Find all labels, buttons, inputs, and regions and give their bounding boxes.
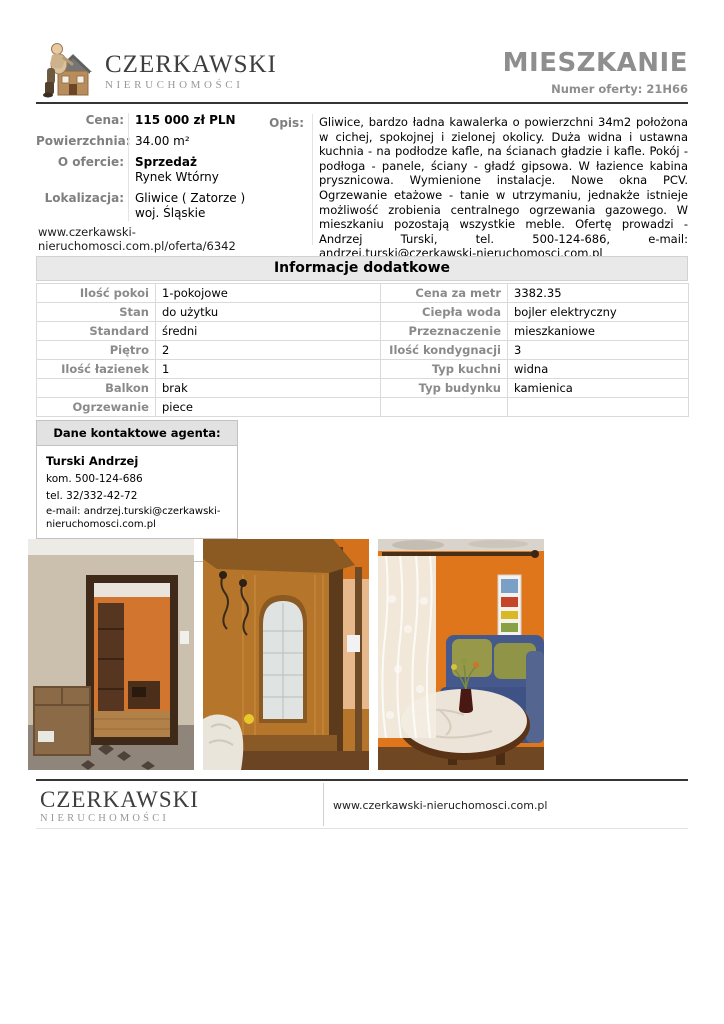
divider-rule-bottom bbox=[36, 779, 688, 781]
info-value: 1 bbox=[156, 360, 381, 379]
info-value: 3382.35 bbox=[508, 284, 689, 303]
info-value: 3 bbox=[508, 341, 689, 360]
summary-divider-line bbox=[128, 113, 129, 221]
brand-text: CZERKAWSKI NIERUCHOMOŚCI bbox=[105, 38, 277, 91]
info-value: widna bbox=[508, 360, 689, 379]
offer-type-value: Sprzedaż bbox=[135, 155, 272, 170]
info-label: Stan bbox=[37, 303, 156, 322]
info-value: 1-pokojowe bbox=[156, 284, 381, 303]
info-label: Ilość pokoi bbox=[37, 284, 156, 303]
table-row: Ogrzewanie piece bbox=[37, 398, 689, 417]
listing-url-line1[interactable]: www.czerkawski- bbox=[38, 225, 236, 239]
location-region: woj. Śląskie bbox=[135, 206, 272, 221]
listing-url-line2[interactable]: nieruchomosci.com.pl/oferta/6342 bbox=[38, 239, 236, 253]
info-label: Ilość kondygnacji bbox=[381, 341, 508, 360]
photo-living-room-image bbox=[378, 539, 544, 770]
price-label: Cena: bbox=[36, 113, 124, 128]
agent-name: Turski Andrzej bbox=[46, 454, 228, 468]
info-value: bojler elektryczny bbox=[508, 303, 689, 322]
additional-info-table: Ilość pokoi 1-pokojowe Cena za metr 3382… bbox=[36, 283, 689, 417]
info-label: Cena za metr bbox=[381, 284, 508, 303]
photo-room-doorway bbox=[28, 539, 194, 770]
info-label: Przeznaczenie bbox=[381, 322, 508, 341]
table-row: Standard średni Przeznaczenie mieszkanio… bbox=[37, 322, 689, 341]
footer-bottom-line bbox=[36, 828, 688, 829]
offer-type-label: O ofercie: bbox=[36, 155, 124, 185]
photo-room-doorway-image bbox=[28, 539, 194, 770]
info-label: Ciepła woda bbox=[381, 303, 508, 322]
photo-hallway-wardrobe bbox=[203, 539, 369, 770]
info-value: mieszkaniowe bbox=[508, 322, 689, 341]
summary-row-location: Lokalizacja: Gliwice ( Zatorze ) woj. Śl… bbox=[36, 191, 272, 221]
photo-hallway-wardrobe-image bbox=[203, 539, 369, 770]
table-row: Ilość łazienek 1 Typ kuchni widna bbox=[37, 360, 689, 379]
table-row: Piętro 2 Ilość kondygnacji 3 bbox=[37, 341, 689, 360]
location-values: Gliwice ( Zatorze ) woj. Śląskie bbox=[135, 191, 272, 221]
info-label: Typ kuchni bbox=[381, 360, 508, 379]
info-label: Standard bbox=[37, 322, 156, 341]
info-label: Typ budynku bbox=[381, 379, 508, 398]
offer-number: Numer oferty: 21H66 bbox=[503, 82, 688, 96]
location-label: Lokalizacja: bbox=[36, 191, 124, 221]
info-label: Ilość łazienek bbox=[37, 360, 156, 379]
footer-website-link[interactable]: www.czerkawski-nieruchomosci.com.pl bbox=[333, 799, 547, 812]
info-value: brak bbox=[156, 379, 381, 398]
brand-name: CZERKAWSKI bbox=[105, 52, 277, 77]
listing-url-link[interactable]: www.czerkawski- nieruchomosci.com.pl/ofe… bbox=[38, 225, 236, 253]
agent-email-link[interactable]: e-mail: andrzej.turski@czerkawski-nieruc… bbox=[46, 506, 228, 531]
description-label: Opis: bbox=[222, 116, 304, 130]
footer-brand-name: CZERKAWSKI bbox=[40, 788, 199, 811]
info-label: Piętro bbox=[37, 341, 156, 360]
info-value: 2 bbox=[156, 341, 381, 360]
info-value: piece bbox=[156, 398, 381, 417]
summary-row-offer: O ofercie: Sprzedaż Rynek Wtórny bbox=[36, 155, 272, 185]
brand-subtitle: NIERUCHOMOŚCI bbox=[105, 80, 277, 91]
footer-divider-line bbox=[323, 783, 324, 826]
divider-rule-top bbox=[36, 102, 688, 104]
description-text: Gliwice, bardzo ładna kawalerka o powier… bbox=[319, 115, 688, 261]
table-row: Stan do użytku Ciepła woda bojler elektr… bbox=[37, 303, 689, 322]
table-row: Balkon brak Typ budynku kamienica bbox=[37, 379, 689, 398]
info-value bbox=[508, 398, 689, 417]
info-label: Ogrzewanie bbox=[37, 398, 156, 417]
header-right: MIESZKANIE Numer oferty: 21H66 bbox=[503, 50, 688, 96]
agent-card-title: Dane kontaktowe agenta: bbox=[37, 421, 237, 446]
offer-type-values: Sprzedaż Rynek Wtórny bbox=[135, 155, 272, 185]
photo-gallery bbox=[28, 539, 544, 770]
area-label: Powierzchnia: bbox=[36, 134, 124, 149]
footer-brand: CZERKAWSKI NIERUCHOMOŚCI bbox=[40, 788, 199, 825]
agent-mobile: kom. 500-124-686 bbox=[46, 473, 228, 486]
description-divider-line bbox=[312, 114, 313, 245]
info-value: średni bbox=[156, 322, 381, 341]
brand-logo: CZERKAWSKI NIERUCHOMOŚCI bbox=[42, 38, 277, 98]
offer-market-value: Rynek Wtórny bbox=[135, 170, 272, 185]
info-value: kamienica bbox=[508, 379, 689, 398]
summary-row-area: Powierzchnia: 34.00 m² bbox=[36, 134, 272, 149]
photo-living-room bbox=[378, 539, 544, 770]
area-value: 34.00 m² bbox=[135, 134, 272, 149]
location-city: Gliwice ( Zatorze ) bbox=[135, 191, 272, 206]
agent-card-body: Turski Andrzej kom. 500-124-686 tel. 32/… bbox=[37, 446, 237, 538]
table-row: Ilość pokoi 1-pokojowe Cena za metr 3382… bbox=[37, 284, 689, 303]
page-title: MIESZKANIE bbox=[503, 50, 688, 76]
info-label bbox=[381, 398, 508, 417]
footer-brand-subtitle: NIERUCHOMOŚCI bbox=[40, 814, 199, 825]
info-value: do użytku bbox=[156, 303, 381, 322]
info-label: Balkon bbox=[37, 379, 156, 398]
listing-page: CZERKAWSKI NIERUCHOMOŚCI MIESZKANIE Nume… bbox=[0, 0, 724, 1024]
additional-info-section: Informacje dodatkowe Ilość pokoi 1-pokoj… bbox=[36, 256, 688, 417]
agent-on-house-icon bbox=[42, 38, 96, 98]
offer-summary: Cena: 115 000 zł PLN Powierzchnia: 34.00… bbox=[36, 113, 272, 227]
agent-phone: tel. 32/332-42-72 bbox=[46, 490, 228, 503]
additional-info-title: Informacje dodatkowe bbox=[36, 256, 688, 281]
